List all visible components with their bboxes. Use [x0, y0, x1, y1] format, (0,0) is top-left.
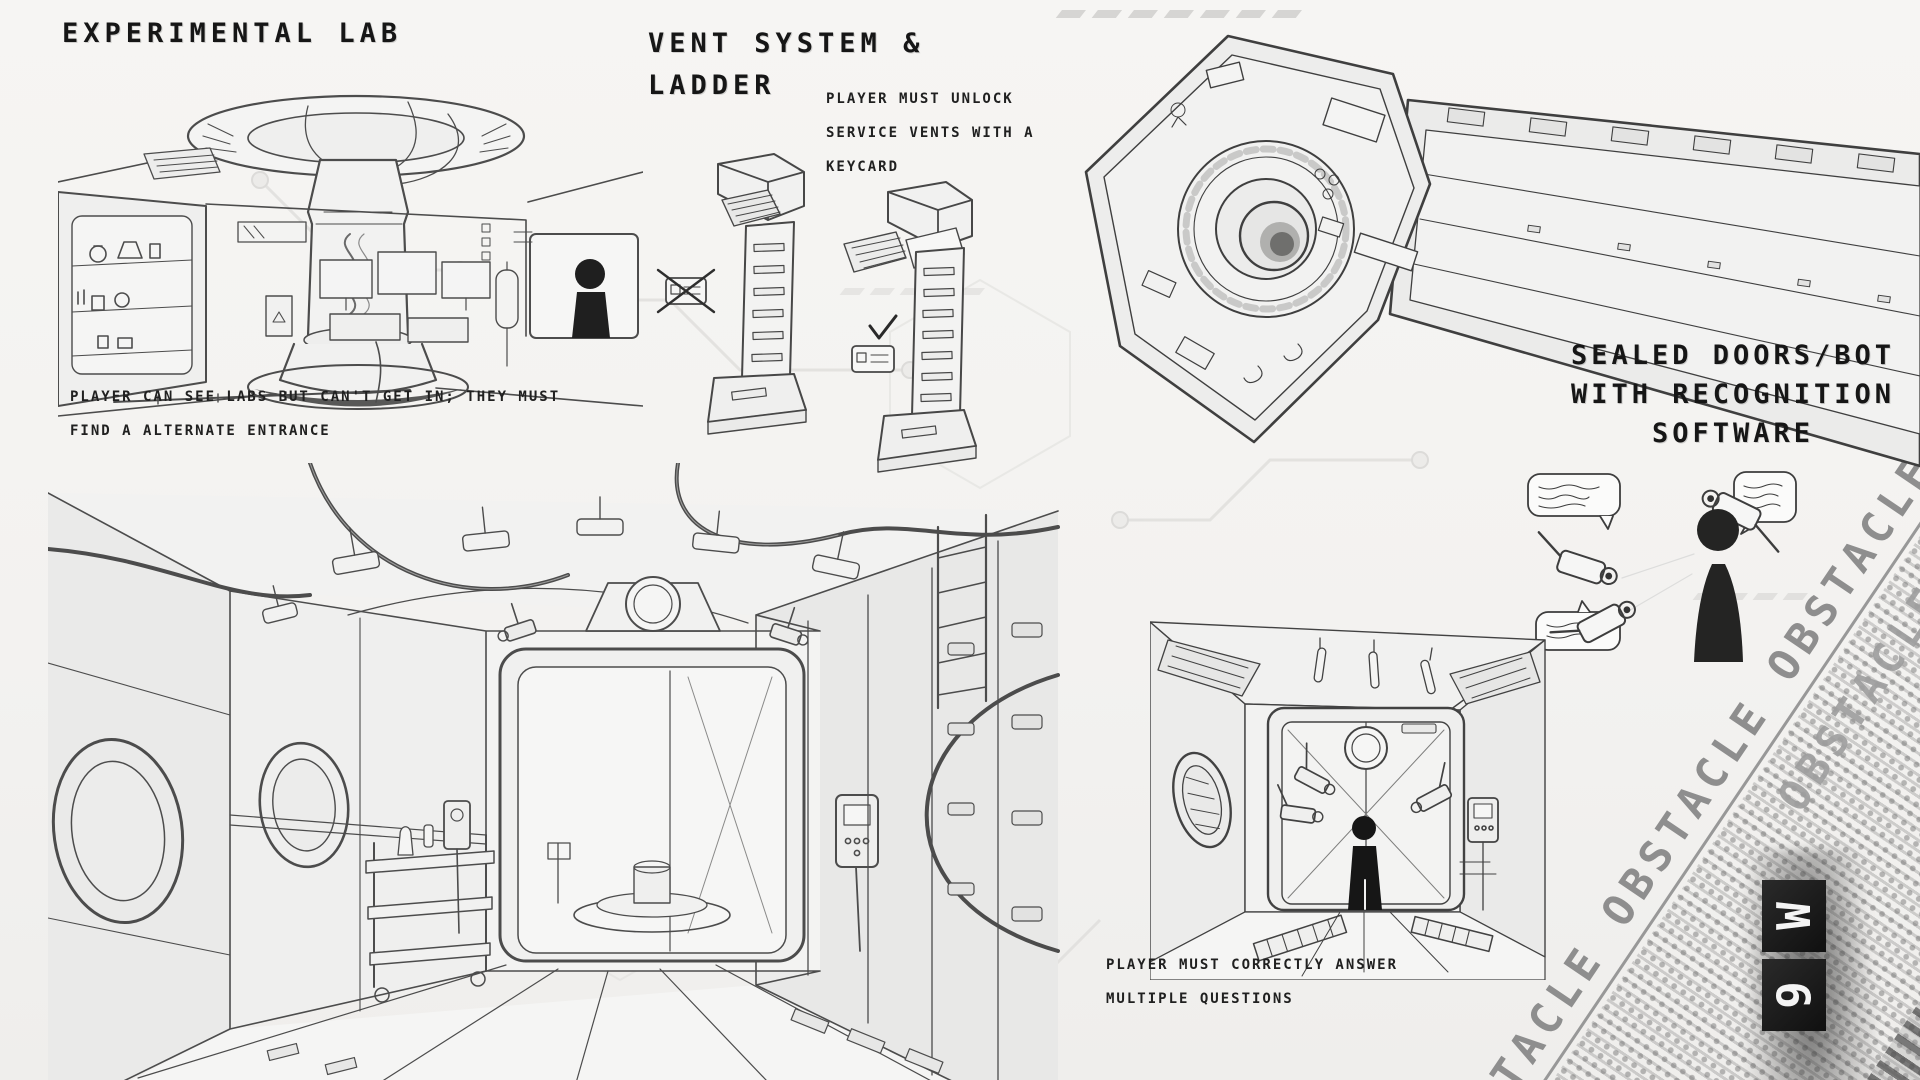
sealed-door-sketch — [1150, 612, 1548, 980]
player-silhouette — [572, 259, 610, 338]
person-silhouette — [1694, 509, 1743, 662]
vent-title-line1: VENT SYSTEM & — [648, 28, 924, 59]
vent-title-line2: LADDER — [648, 70, 776, 101]
studio-logo: W 9 — [1762, 880, 1828, 1038]
keycard-denied-icon — [658, 270, 714, 312]
sealed-doors-heading: SEALED DOORS/BOT WITH RECOGNITION SOFTWA… — [1548, 336, 1918, 453]
logo-square-top: W — [1762, 880, 1826, 952]
check-icon — [870, 316, 896, 338]
keycard-allowed-icon — [852, 346, 894, 372]
logo-square-bottom: 9 — [1762, 959, 1826, 1031]
vent-ladder-sketch — [656, 148, 991, 483]
sealed-door-caption: PLAYER MUST CORRECTLY ANSWER MULTIPLE QU… — [1106, 948, 1398, 1016]
camera-icon — [1529, 532, 1622, 589]
experimental-lab-caption: PLAYER CAN SEE LABS BUT CAN'T GET IN; TH… — [70, 380, 560, 448]
experimental-lab-title: EXPERIMENTAL LAB — [62, 18, 402, 49]
concept-sheet: OBSTACLE OBSTACLE OBSTACLE OBSTACLE OBST… — [0, 0, 1920, 1080]
recognition-doodle — [1522, 466, 1804, 672]
speech-bubble — [1528, 474, 1620, 529]
corridor-sketch — [48, 463, 1060, 1080]
